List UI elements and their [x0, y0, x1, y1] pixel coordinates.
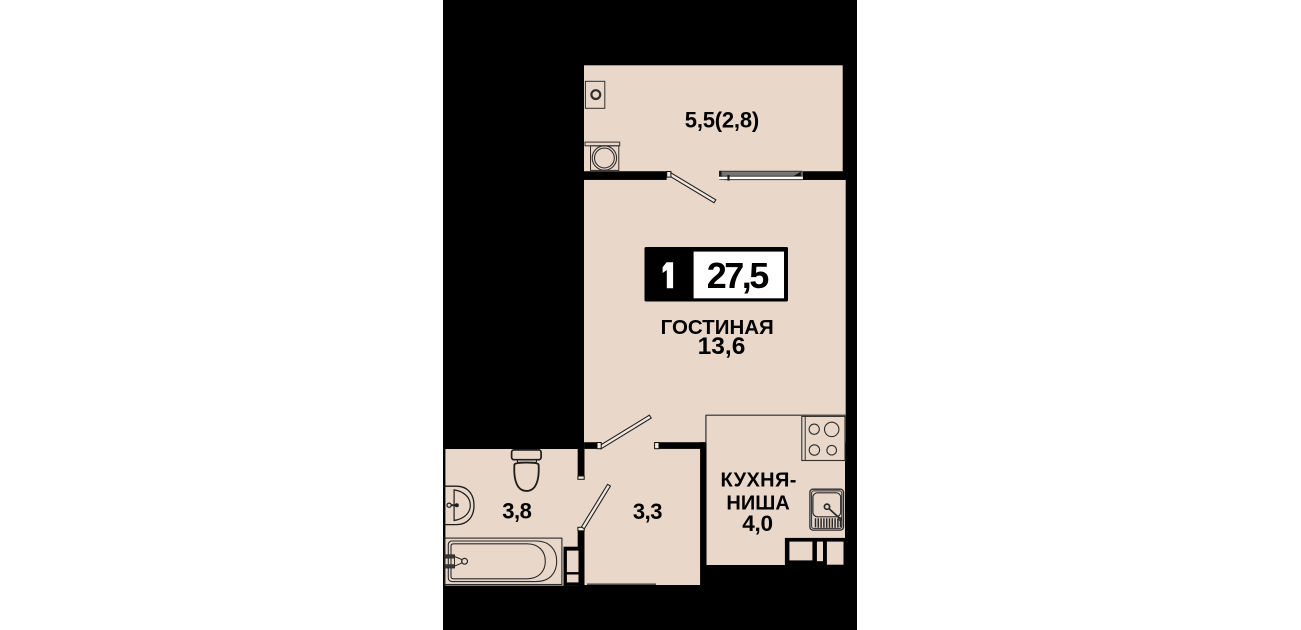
svg-text:4,0: 4,0: [742, 511, 772, 536]
svg-text:3,8: 3,8: [502, 499, 531, 524]
svg-text:13,6: 13,6: [698, 333, 746, 360]
svg-text:27,5: 27,5: [707, 255, 770, 296]
svg-text:КУХНЯ-: КУХНЯ-: [721, 470, 797, 492]
svg-text:5,5(2,8): 5,5(2,8): [685, 107, 759, 132]
svg-text:3,3: 3,3: [633, 499, 662, 524]
